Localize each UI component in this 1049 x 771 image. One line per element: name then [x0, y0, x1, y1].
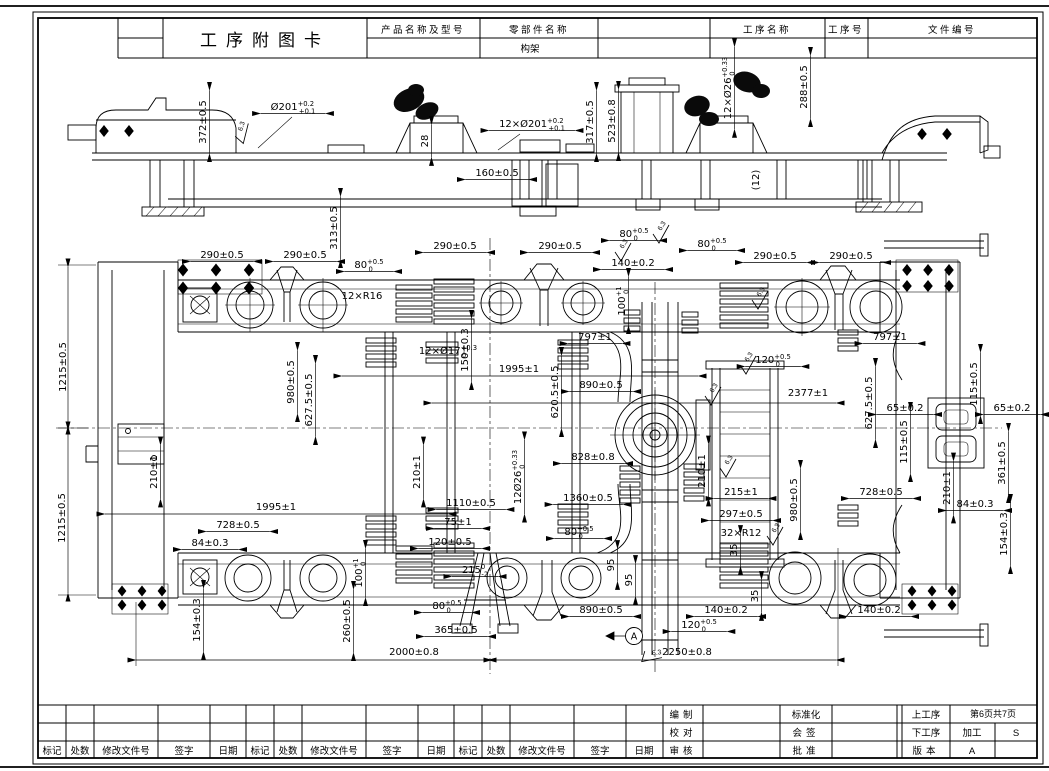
dimension-annotation: 12×Ø26+0.330 [721, 47, 737, 130]
product-name-label: 产品名称及型号 [381, 24, 465, 36]
dimension-annotation: 288±0.5 [799, 55, 811, 118]
dimension-annotation: 2250±0.8 [662, 647, 712, 658]
dimension-annotation: 980±0.5 [286, 350, 298, 413]
dimension-annotation: 1995±1 [499, 364, 539, 375]
svg-text:290±0.5: 290±0.5 [538, 241, 581, 252]
dimension-annotation: 84±0.3 [946, 499, 1003, 511]
dimension-annotation: 210±1 [697, 444, 709, 498]
svg-text:84±0.3: 84±0.3 [191, 538, 228, 549]
svg-text:523±0.8: 523±0.8 [607, 99, 618, 142]
svg-text:210±1: 210±1 [149, 455, 160, 489]
diamond-mark [942, 128, 952, 140]
lug-stack-bar [396, 554, 432, 559]
diamond-mark [948, 600, 957, 611]
dimension-annotation: 290±0.5 [423, 241, 486, 253]
svg-text:80+0.50: 80+0.50 [354, 258, 383, 274]
diamond-mark [178, 282, 188, 295]
dimension-annotation: 1995±1 [256, 502, 296, 513]
svg-text:35: 35 [750, 590, 761, 603]
svg-text:297±0.5: 297±0.5 [719, 509, 762, 520]
svg-text:(12): (12) [751, 170, 762, 191]
lug-stack-bar [720, 567, 768, 572]
diamond-mark [244, 282, 254, 295]
lug-stack-bar [366, 532, 396, 537]
svg-text:154±0.3: 154±0.3 [999, 512, 1010, 555]
svg-text:210±1: 210±1 [697, 454, 708, 488]
lug-stack-bar [396, 293, 432, 298]
svg-text:12×Ø26+0.330: 12×Ø26+0.330 [721, 57, 737, 120]
svg-text:797±1: 797±1 [873, 332, 907, 343]
proofread-label: 校对 [669, 727, 696, 739]
dimension-annotation: 290±0.5 [528, 241, 591, 253]
svg-text:115±0.5: 115±0.5 [969, 362, 980, 405]
diamond-mark [138, 600, 147, 611]
svg-text:32×R12: 32×R12 [721, 528, 762, 539]
lug-stack-bar [396, 301, 432, 306]
svg-text:140±0.2: 140±0.2 [704, 605, 747, 616]
lug-stack-bar [720, 575, 768, 580]
diamond-mark [244, 264, 254, 277]
svg-text:728±0.5: 728±0.5 [216, 520, 259, 531]
lug-stack-bar [838, 338, 858, 343]
svg-text:100+10: 100+10 [615, 286, 631, 315]
next-process-label: 下工序 [912, 727, 941, 739]
svg-text:728±0.5: 728±0.5 [859, 487, 902, 498]
svg-text:980±0.5: 980±0.5 [286, 360, 297, 403]
dimension-annotation: 150±0.3 [460, 318, 472, 381]
dimension-annotation: 627.5±0.5 [304, 364, 316, 437]
diamond-mark [211, 264, 221, 277]
dimension-annotation: 210±1 [412, 445, 424, 499]
dimension-annotation: 35 [750, 580, 762, 613]
lug-stack-bar [366, 540, 396, 545]
svg-text:215±1: 215±1 [724, 487, 758, 498]
revision-header: 标记 [458, 745, 478, 757]
svg-text:361±0.5: 361±0.5 [997, 441, 1008, 484]
svg-text:115±0.5: 115±0.5 [899, 420, 910, 463]
dimension-annotation: 365±0.5 [424, 625, 487, 637]
dimension-annotation: 140±0.2 [847, 605, 910, 617]
svg-text:2150-2: 2150-2 [462, 563, 488, 579]
lug-stack-bar [426, 358, 458, 363]
svg-text:290±0.5: 290±0.5 [283, 250, 326, 261]
roughness-mark: 6.3 [705, 382, 721, 405]
lug-stack-bar [720, 551, 768, 556]
process-name-label: 工序名称 [743, 24, 791, 36]
doc-no-label: 文件编号 [928, 24, 976, 36]
dimension-annotation: 290±0.5 [273, 250, 336, 262]
svg-text:95: 95 [606, 559, 617, 572]
revision-table-headers: 标记处数修改文件号签字日期标记处数修改文件号签字日期标记处数修改文件号签字日期 [42, 745, 653, 757]
svg-text:210±1: 210±1 [412, 455, 423, 489]
revision-header: 日期 [218, 746, 237, 757]
prev-process-label: 上工序 [912, 709, 941, 721]
header-texts: 工序附图卡 产品名称及型号 零部件名称 构架 工序名称 工序号 文件编号 [200, 24, 976, 55]
diamond-mark [908, 586, 917, 597]
svg-text:140±0.2: 140±0.2 [611, 258, 654, 269]
revision-header: 标记 [250, 745, 270, 757]
dimension-annotation: 65±0.2 [983, 403, 1040, 415]
dimension-annotation: 317±0.5 [585, 90, 597, 153]
dimension-annotation: 890±0.5 [569, 605, 632, 617]
svg-text:1215±0.5: 1215±0.5 [58, 342, 69, 392]
svg-text:160±0.5: 160±0.5 [475, 168, 518, 179]
card-title: 工序附图卡 [200, 31, 330, 50]
revision-header: 标记 [42, 745, 62, 757]
dimension-annotation: 260±0.5 [342, 589, 354, 652]
dimension-annotation: 290±0.5 [819, 251, 882, 263]
dimension-annotation: 620.5±0.5 [550, 356, 562, 429]
svg-text:627.5±0.5: 627.5±0.5 [304, 374, 315, 427]
dimension-annotation: 523±0.8 [607, 89, 619, 152]
ink-blob-marks [390, 68, 770, 126]
dimension-annotation: 372±0.5 [198, 90, 210, 153]
footer-texts: 编制 校对 审核 标准化 会签 批准 上工序 下工序 版本 第6页共7页 加工 … [669, 708, 1019, 757]
version-label: 版本 [912, 745, 939, 757]
dimension-annotation: 12×R16 [342, 291, 383, 302]
lug-stack-bar [558, 356, 588, 361]
editor-label: 编制 [669, 709, 696, 721]
process-card-sheet: 工序附图卡 产品名称及型号 零部件名称 构架 工序名称 工序号 文件编号 编制 … [0, 0, 1049, 771]
dimension-annotation: 12Ø26+0.330 [511, 440, 527, 514]
svg-text:620.5±0.5: 620.5±0.5 [550, 366, 561, 419]
svg-text:313±0.5: 313±0.5 [329, 206, 340, 249]
version-value: A [969, 746, 976, 757]
lug-stack-bar [366, 354, 396, 359]
roughness-mark: 6.3 [720, 454, 736, 477]
svg-text:A: A [631, 632, 638, 643]
lug-stack-bar [434, 303, 474, 308]
lug-stack-bar [624, 326, 640, 331]
svg-text:80+0.50: 80+0.50 [564, 525, 593, 541]
svg-text:100+10: 100+10 [352, 558, 368, 587]
svg-text:12Ø26+0.330: 12Ø26+0.330 [511, 450, 527, 504]
lug-stack-bar [720, 307, 768, 312]
dimension-annotation: 2377±1 [788, 388, 828, 399]
svg-text:890±0.5: 890±0.5 [579, 380, 622, 391]
revision-header: 签字 [382, 745, 401, 757]
lug-stack-bar [396, 317, 432, 322]
svg-text:154±0.3: 154±0.3 [192, 598, 203, 641]
dimension-annotation: 12×Ø201+0.2+0.1 [489, 117, 575, 133]
dimension-annotation: 95 [624, 564, 636, 597]
svg-text:260±0.5: 260±0.5 [342, 599, 353, 642]
lug-stack-bar [434, 583, 474, 588]
dimension-annotation: 290±0.5 [743, 251, 806, 263]
diamond-mark [948, 586, 957, 597]
dimension-annotation: 797±1 [863, 332, 917, 344]
dimension-annotation: 140±0.2 [601, 258, 664, 270]
lug-stack-bar [434, 551, 474, 556]
revision-header: 签字 [174, 745, 193, 757]
revision-header: 处数 [486, 745, 506, 757]
dimension-annotation: 1215±0.5 [58, 342, 69, 392]
page-number: 第6页共7页 [970, 708, 1016, 719]
dimension-annotation: 980±0.5 [789, 468, 801, 531]
part-name-value: 构架 [520, 43, 540, 55]
review-label: 审核 [669, 745, 696, 757]
revision-header: 处数 [278, 745, 298, 757]
svg-text:288±0.5: 288±0.5 [799, 65, 810, 108]
svg-text:980±0.5: 980±0.5 [789, 478, 800, 521]
svg-text:140±0.2: 140±0.2 [857, 605, 900, 616]
svg-text:2000±0.8: 2000±0.8 [389, 647, 439, 658]
revision-header: 日期 [426, 746, 445, 757]
dimension-annotation: 828±0.8 [561, 452, 624, 464]
revision-header: 签字 [590, 745, 609, 757]
diamond-mark [923, 280, 933, 292]
lug-stack-bar [620, 498, 640, 503]
dimension-annotation: 115±0.5 [899, 410, 911, 473]
lug-stack-bar [396, 562, 432, 567]
lug-stack-bar [366, 346, 396, 351]
diamond-mark [99, 125, 109, 137]
dimension-annotation: 313±0.5 [329, 196, 341, 259]
lug-stack-bar [366, 338, 396, 343]
svg-text:627.5±0.5: 627.5±0.5 [864, 377, 875, 430]
dimension-annotation: 65±0.2 [876, 403, 933, 415]
part-name-label: 零部件名称 [509, 24, 569, 36]
svg-text:80+0.50: 80+0.50 [432, 599, 461, 615]
lug-stack-bar [624, 318, 640, 323]
svg-text:95: 95 [624, 574, 635, 587]
lug-stack-bar [682, 312, 698, 317]
revision-header: 修改文件号 [102, 745, 150, 757]
dimension-annotation: 80+0.50 [344, 258, 393, 274]
machining-value: 加工 [962, 728, 982, 739]
lug-stack-bar [838, 513, 858, 518]
dimension-annotation: 80+0.50 [687, 237, 736, 253]
lug-stack-bar [366, 524, 396, 529]
dimension-annotation: 160±0.5 [465, 168, 528, 180]
revision-header: 修改文件号 [518, 745, 566, 757]
lug-stack-bar [838, 330, 858, 335]
svg-text:1215±0.5: 1215±0.5 [57, 493, 68, 543]
dimension-annotation: 728±0.5 [206, 520, 269, 532]
lug-stack-bar [720, 315, 768, 320]
engineering-drawing: 工序附图卡 产品名称及型号 零部件名称 构架 工序名称 工序号 文件编号 编制 … [0, 0, 1049, 771]
lug-stack-bar [434, 319, 474, 324]
dimension-annotation: 28 [420, 125, 432, 158]
lug-stack-bar [366, 362, 396, 367]
svg-text:2250±0.8: 2250±0.8 [662, 647, 712, 658]
svg-text:1995±1: 1995±1 [256, 502, 296, 513]
svg-text:890±0.5: 890±0.5 [579, 605, 622, 616]
svg-text:290±0.5: 290±0.5 [433, 241, 476, 252]
revision-header: 修改文件号 [310, 745, 358, 757]
diamond-mark [124, 125, 134, 137]
dimension-annotation: Ø201+0.2+0.1 [261, 100, 326, 116]
approve-label: 批准 [792, 745, 819, 757]
diamond-mark [158, 600, 167, 611]
diamond-mark [902, 264, 912, 276]
dimension-annotation: 84±0.3 [181, 538, 238, 550]
lug-stack-bar [720, 559, 768, 564]
diamond-mark [928, 600, 937, 611]
diamond-mark [178, 264, 188, 277]
lug-stack-bar [620, 474, 640, 479]
diamond-mark [923, 264, 933, 276]
lug-stack-bar [558, 364, 588, 369]
diamond-mark [138, 586, 147, 597]
lug-stack-bar [838, 521, 858, 526]
dimension-annotation: 140±0.2 [694, 605, 757, 617]
diamond-mark [928, 586, 937, 597]
svg-text:1995±1: 1995±1 [499, 364, 539, 375]
svg-text:150±0.3: 150±0.3 [460, 328, 471, 371]
lug-stack-bar [558, 348, 588, 353]
revision-header: 日期 [634, 746, 653, 757]
svg-text:120+0.50: 120+0.50 [755, 353, 791, 369]
svg-text:28: 28 [420, 135, 431, 148]
s-value: S [1013, 728, 1019, 739]
dimension-annotation: 210±1 [942, 461, 954, 515]
dimension-annotation: 75±1 [434, 517, 481, 529]
svg-text:6.3: 6.3 [237, 121, 247, 132]
dimension-annotation: 627.5±0.5 [864, 367, 876, 440]
diamond-mark [158, 586, 167, 597]
diamond-mark [118, 600, 127, 611]
lug-stack-bar [396, 309, 432, 314]
svg-text:84±0.3: 84±0.3 [956, 499, 993, 510]
dimension-annotation: 210±1 [149, 445, 161, 499]
roughness-mark: 6.3 [653, 220, 669, 243]
roughness-mark: 6.3 [740, 351, 756, 374]
roughness-mark: 6.3 [752, 286, 768, 309]
svg-text:2377±1: 2377±1 [788, 388, 828, 399]
lug-stack-bar [366, 516, 396, 521]
lug-stack-bar [434, 311, 474, 316]
diamond-mark [917, 128, 927, 140]
datum-target: A [606, 628, 643, 645]
svg-text:372±0.5: 372±0.5 [198, 100, 209, 143]
svg-text:120+0.50: 120+0.50 [681, 618, 717, 634]
dimension-annotation: 361±0.5 [997, 431, 1009, 494]
process-no-label: 工序号 [828, 24, 864, 36]
svg-text:1110±0.5: 1110±0.5 [446, 498, 496, 509]
svg-text:210±1: 210±1 [942, 471, 953, 505]
lug-stack-bar [720, 583, 768, 588]
dimension-annotation: 1215±0.5 [57, 493, 68, 543]
lug-stack-bar [434, 295, 474, 300]
dimension-annotation: 297±0.5 [709, 509, 772, 521]
svg-text:1360±0.5: 1360±0.5 [563, 493, 613, 504]
diamond-mark [902, 280, 912, 292]
lug-stack-bar [396, 578, 432, 583]
lug-stack-bar [838, 505, 858, 510]
lug-stack-bar [838, 346, 858, 351]
dimension-annotation: 80+0.50 [609, 227, 658, 243]
svg-text:290±0.5: 290±0.5 [200, 250, 243, 261]
svg-text:65±0.2: 65±0.2 [993, 403, 1030, 414]
revision-header: 处数 [70, 745, 90, 757]
diamond-mark [908, 600, 917, 611]
dimension-annotation: 154±0.3 [192, 588, 204, 651]
standardization-label: 标准化 [792, 709, 821, 721]
lug-stack-bar [396, 570, 432, 575]
dimension-annotation: 32×R12 [721, 528, 762, 539]
lug-stack-bar [558, 512, 588, 517]
dimension-annotation: 120+0.50 [671, 618, 727, 634]
svg-text:120±0.5: 120±0.5 [428, 537, 471, 548]
dimension-annotation: 115±0.5 [969, 352, 981, 415]
dimension-annotation: 100+10 [352, 548, 368, 597]
svg-text:290±0.5: 290±0.5 [829, 251, 872, 262]
dimension-annotation: 1110±0.5 [436, 498, 506, 510]
dimension-annotation: 215±1 [714, 487, 768, 499]
lug-stack-bar [434, 559, 474, 564]
dimension-annotation: 1360±0.5 [553, 493, 623, 505]
svg-text:828±0.8: 828±0.8 [571, 452, 614, 463]
svg-text:65±0.2: 65±0.2 [886, 403, 923, 414]
dimension-annotation: 80+0.50 [422, 599, 471, 615]
svg-text:290±0.5: 290±0.5 [753, 251, 796, 262]
dimension-annotation: 2000±0.8 [389, 647, 439, 658]
diamond-mark [118, 586, 127, 597]
svg-text:75±1: 75±1 [444, 517, 471, 528]
lug-stack-bar [434, 287, 474, 292]
roughness-mark: 6.3 [767, 522, 783, 545]
svg-text:35: 35 [729, 544, 740, 557]
svg-text:12×R16: 12×R16 [342, 291, 383, 302]
svg-text:317±0.5: 317±0.5 [585, 100, 596, 143]
lug-stack-bar [684, 496, 704, 501]
countersign-label: 会签 [792, 727, 819, 739]
dimension-annotation: (12) [751, 170, 762, 191]
dimension-annotation: 890±0.5 [569, 380, 632, 392]
dimension-annotation: 95 [606, 549, 618, 582]
svg-text:365±0.5: 365±0.5 [434, 625, 477, 636]
svg-text:797±1: 797±1 [578, 332, 612, 343]
diamond-mark [211, 282, 221, 295]
svg-text:6.3: 6.3 [652, 649, 663, 657]
dimension-annotation: 728±0.5 [849, 487, 912, 499]
dimension-annotation: 154±0.3 [999, 502, 1011, 565]
